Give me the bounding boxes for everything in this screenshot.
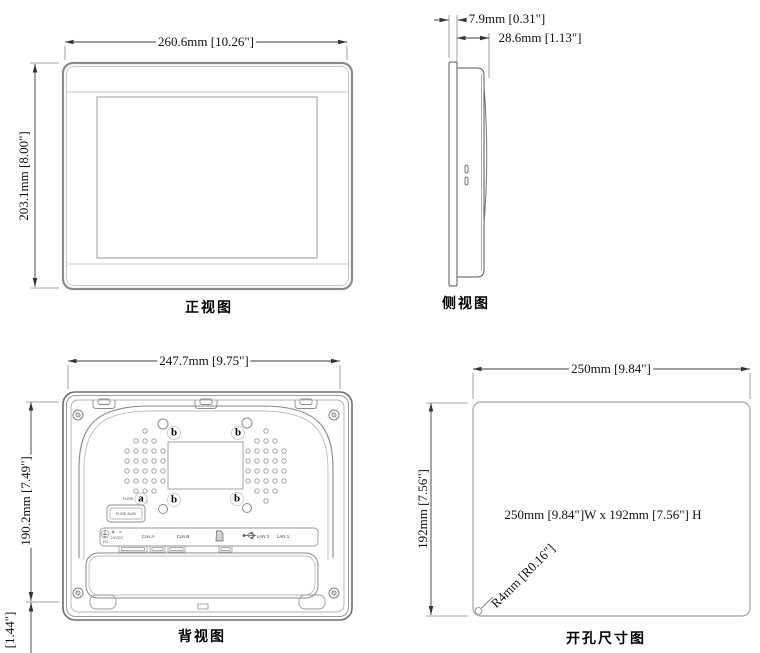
technical-drawing-canvas: 260.6mm [10.26"] 203.1mm [8.00"] 正视图 7.9… [0, 0, 760, 653]
side-total-depth-dimension: 28.6mm [1.13"] [497, 31, 584, 45]
usb-icon [243, 532, 256, 539]
cutout-height-dimension: 192mm [7.56"] [416, 467, 430, 551]
con-a-port-label: Con.A [142, 534, 155, 539]
side-slot-upper [465, 165, 468, 173]
front-view-outline [63, 63, 352, 289]
side-view-label: 侧视图 [442, 293, 490, 313]
corner-screw [329, 588, 339, 598]
corner-screw [73, 588, 83, 598]
side-slot-lower [465, 177, 468, 185]
back-bottom-clearance-dimension: [1.44"] [3, 610, 17, 651]
side-bezel-depth-dimension: 7.9mm [0.31"] [467, 12, 547, 26]
lan1-port-label: LAN 1 [277, 534, 290, 539]
front-height-dimension: 203.1mm [8.00"] [17, 129, 31, 222]
nameplate-area [168, 442, 243, 489]
callout-b-label: b [171, 495, 177, 506]
fuse-tag-label: FUSE [123, 497, 134, 501]
ground-icon [101, 530, 109, 538]
back-view-label: 背视图 [178, 626, 226, 646]
power-polarity-icon [112, 531, 123, 534]
back-view-outline [63, 392, 352, 620]
cutout-width-dimension: 250mm [9.84"] [569, 362, 653, 376]
back-width-dimension: 247.7mm [9.75"] [157, 354, 250, 368]
corner-screws [73, 410, 339, 598]
fg-port-label: FG [103, 540, 109, 544]
front-view-label: 正视图 [185, 297, 233, 317]
lan2-port-label: LAN 2 [257, 534, 270, 539]
callout-a-label: a [138, 494, 144, 505]
vent-holes-left [125, 429, 165, 503]
cutout-view-label: 开孔尺寸图 [566, 628, 646, 648]
drawing-line-art [0, 0, 760, 653]
power-port-label: 24VDC [111, 536, 124, 540]
connector-footprints [119, 546, 232, 552]
side-view-outline [449, 62, 487, 286]
front-screen-area [97, 97, 317, 258]
corner-screw [73, 410, 83, 420]
back-height-dimension: 190.2mm [7.49"] [19, 454, 33, 547]
con-b-port-label: Con.B [177, 534, 190, 539]
callout-b-label: b [171, 428, 177, 439]
sd-card-icon [216, 531, 223, 541]
terminal-cover-recess [86, 553, 325, 609]
vent-holes-right [246, 429, 286, 503]
back-dimension-lines [26, 361, 340, 653]
cutout-size-note: 250mm [9.84"]W x 192mm [7.56"] H [502, 508, 703, 522]
front-dimension-lines [30, 42, 347, 288]
callout-b-label: b [234, 494, 240, 505]
callout-b-label: b [235, 428, 241, 439]
corner-screw [329, 410, 339, 420]
callout-balloons [135, 427, 245, 507]
corner-radius-mark [475, 608, 482, 615]
fuse-box-label: FUSE 8x20 [116, 512, 136, 516]
front-width-dimension: 260.6mm [10.26"] [156, 35, 256, 49]
